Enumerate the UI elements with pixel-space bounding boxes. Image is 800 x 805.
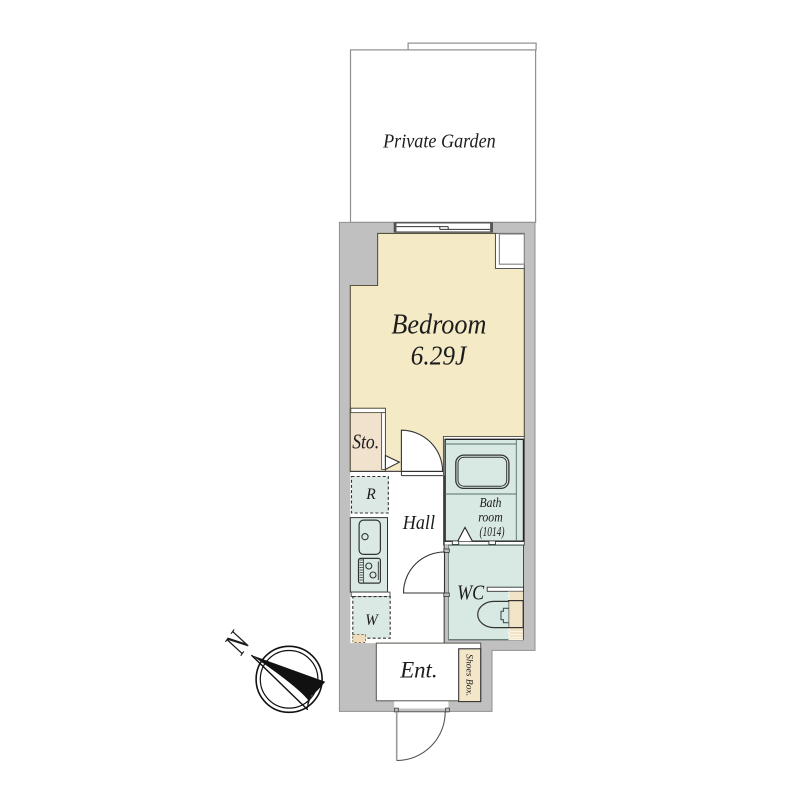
svg-text:(1014): (1014) xyxy=(480,524,505,539)
svg-text:6.29J: 6.29J xyxy=(411,341,468,371)
svg-text:Sto.: Sto. xyxy=(352,429,379,453)
svg-text:W: W xyxy=(365,612,379,629)
svg-text:room: room xyxy=(478,510,503,525)
svg-text:Shoes Box.: Shoes Box. xyxy=(464,654,474,696)
svg-text:Ent.: Ent. xyxy=(399,658,437,684)
svg-text:Bedroom: Bedroom xyxy=(391,310,486,341)
svg-text:Private Garden: Private Garden xyxy=(382,132,496,153)
svg-text:Hall: Hall xyxy=(402,512,436,534)
svg-text:WC: WC xyxy=(457,580,485,604)
svg-text:R: R xyxy=(365,486,376,503)
svg-text:Bath: Bath xyxy=(480,495,502,510)
